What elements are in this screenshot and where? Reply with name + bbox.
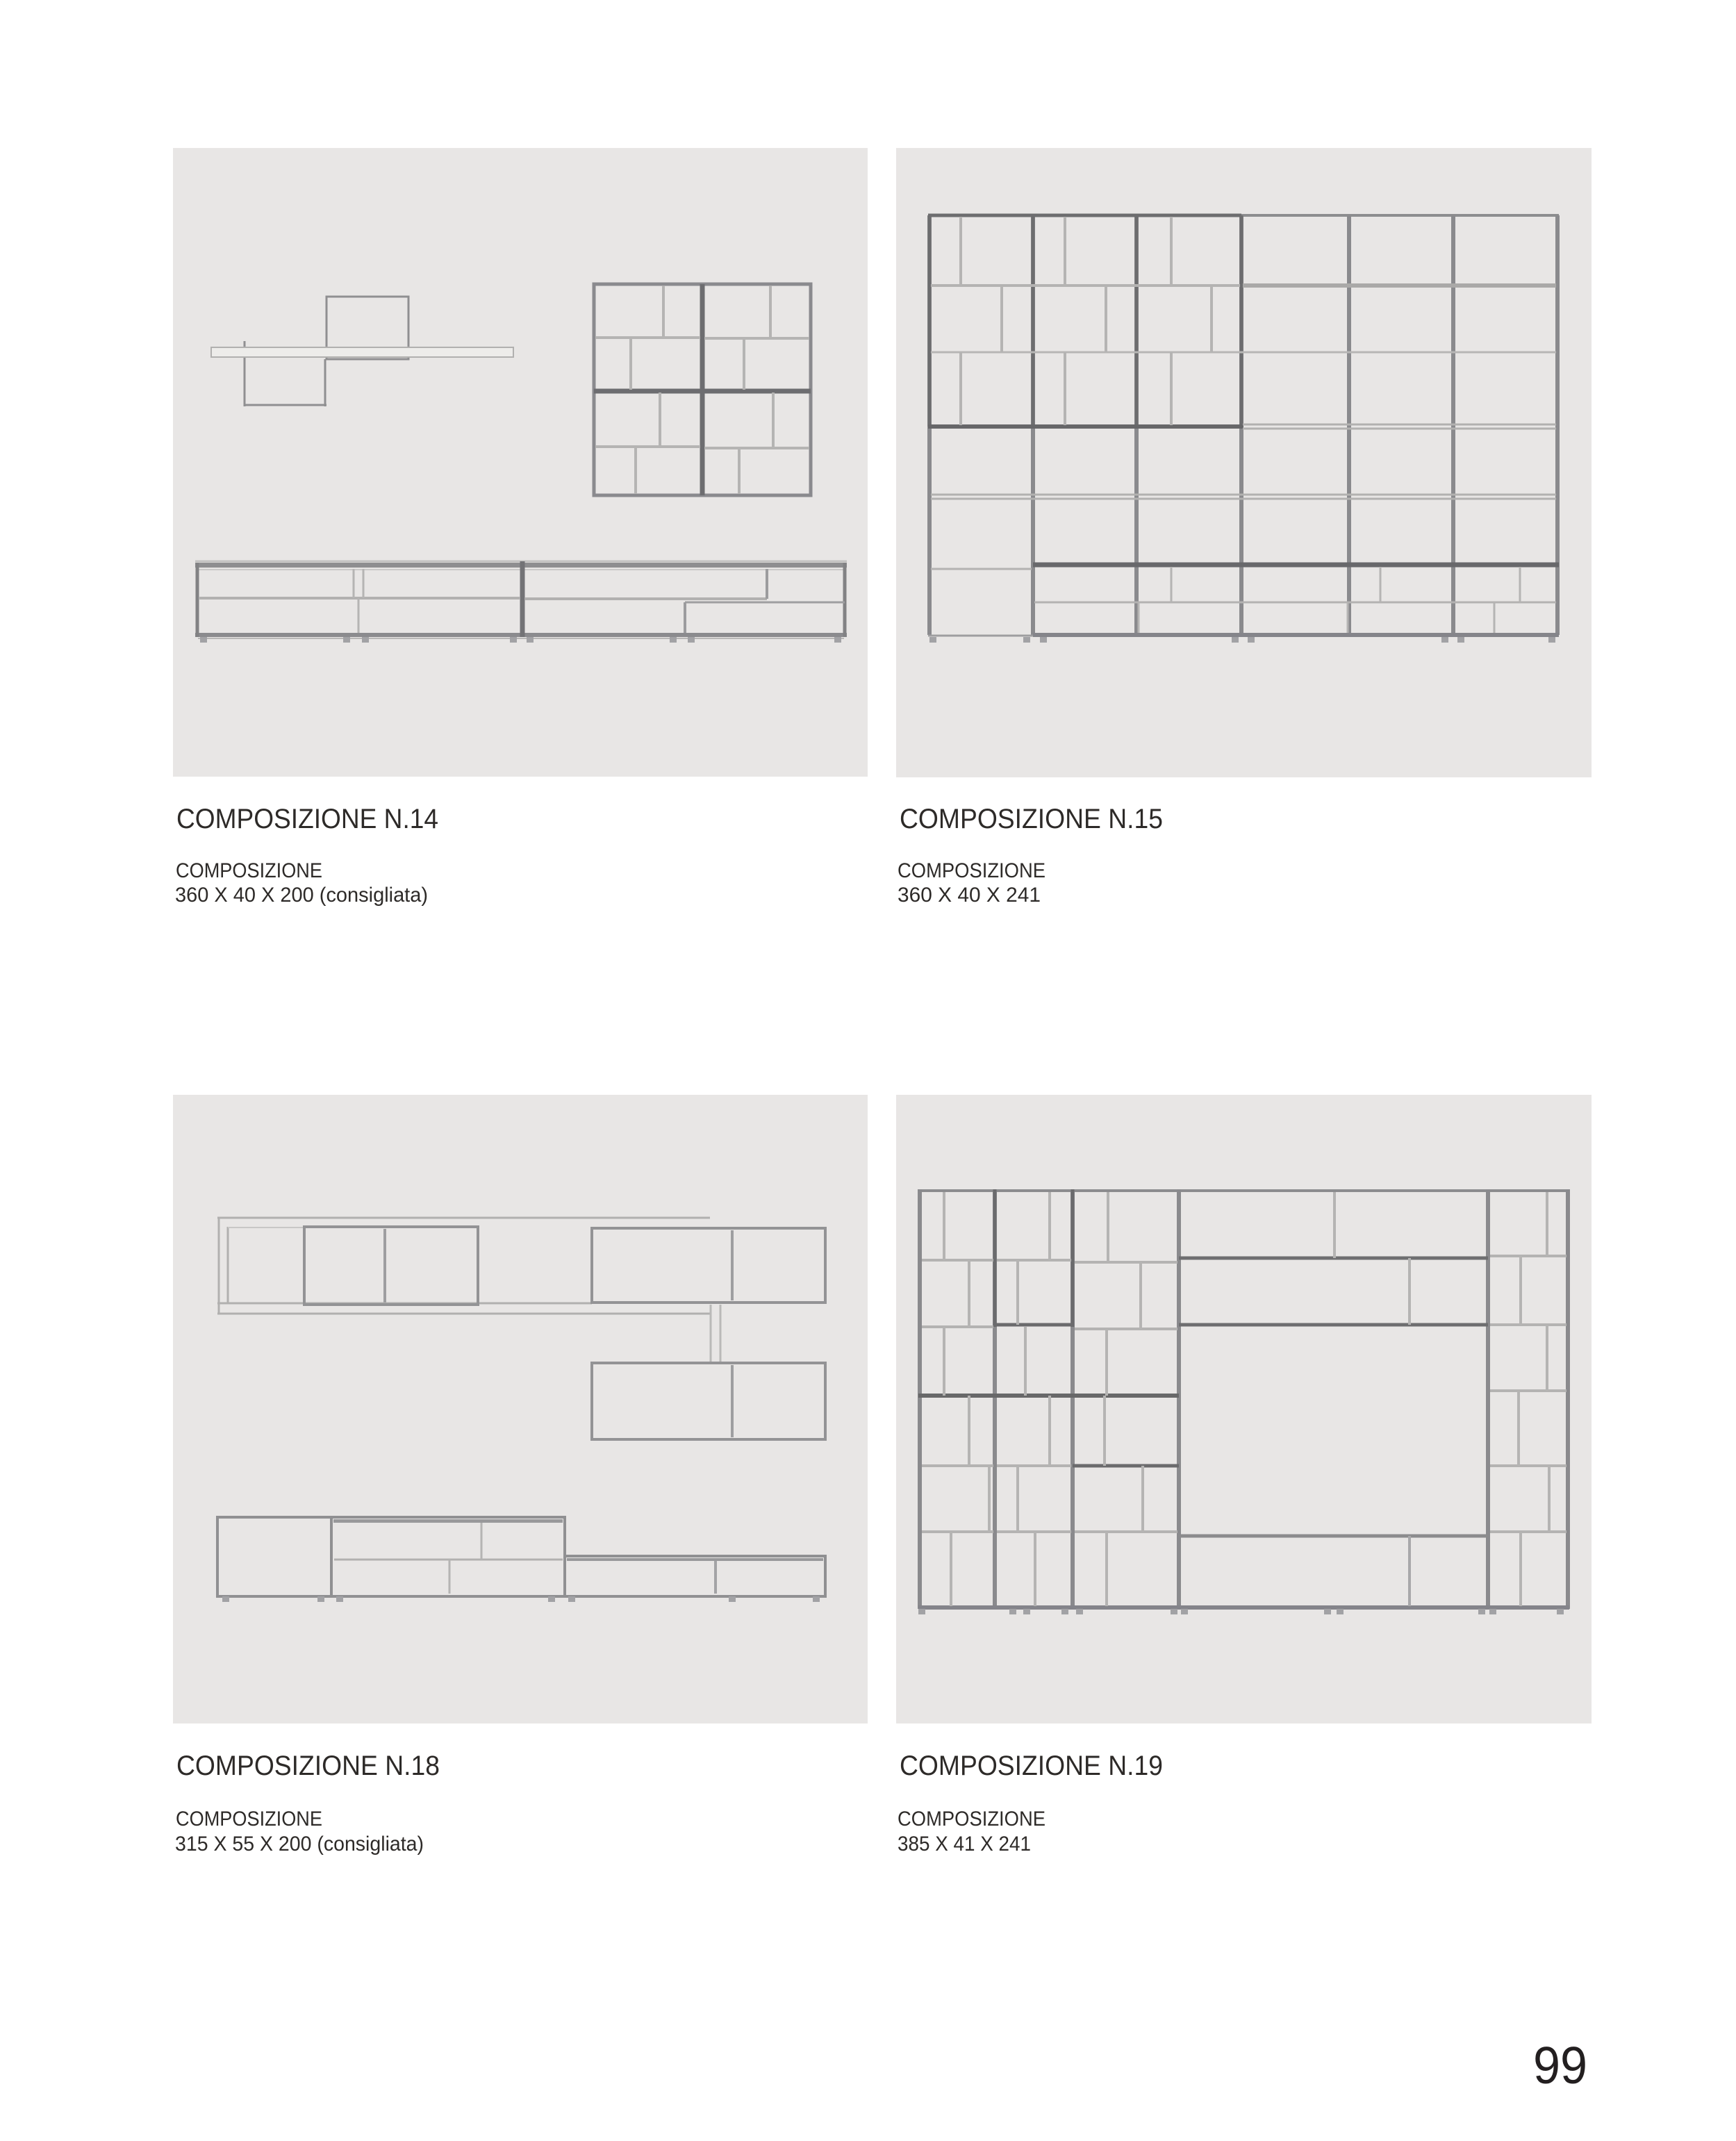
svg-text:COMPOSIZIONE: COMPOSIZIONE <box>898 1808 1045 1830</box>
svg-text:COMPOSIZIONE: COMPOSIZIONE <box>898 859 1045 882</box>
svg-text:COMPOSIZIONE: COMPOSIZIONE <box>176 859 322 882</box>
svg-text:385 X 41 X 241: 385 X 41 X 241 <box>898 1833 1031 1855</box>
svg-text:COMPOSIZIONE N.15: COMPOSIZIONE N.15 <box>900 804 1163 834</box>
svg-text:COMPOSIZIONE N.19: COMPOSIZIONE N.19 <box>900 1751 1163 1781</box>
svg-text:360 X 40 X 200 (consigliata): 360 X 40 X 200 (consigliata) <box>175 884 428 907</box>
svg-text:99: 99 <box>1533 2036 1587 2094</box>
svg-text:COMPOSIZIONE N.18: COMPOSIZIONE N.18 <box>176 1751 440 1781</box>
svg-text:COMPOSIZIONE N.14: COMPOSIZIONE N.14 <box>176 804 438 834</box>
svg-text:360 X 40 X 241: 360 X 40 X 241 <box>898 884 1041 907</box>
svg-text:315 X 55 X 200 (consigliata): 315 X 55 X 200 (consigliata) <box>175 1833 424 1855</box>
svg-text:COMPOSIZIONE: COMPOSIZIONE <box>176 1808 322 1830</box>
